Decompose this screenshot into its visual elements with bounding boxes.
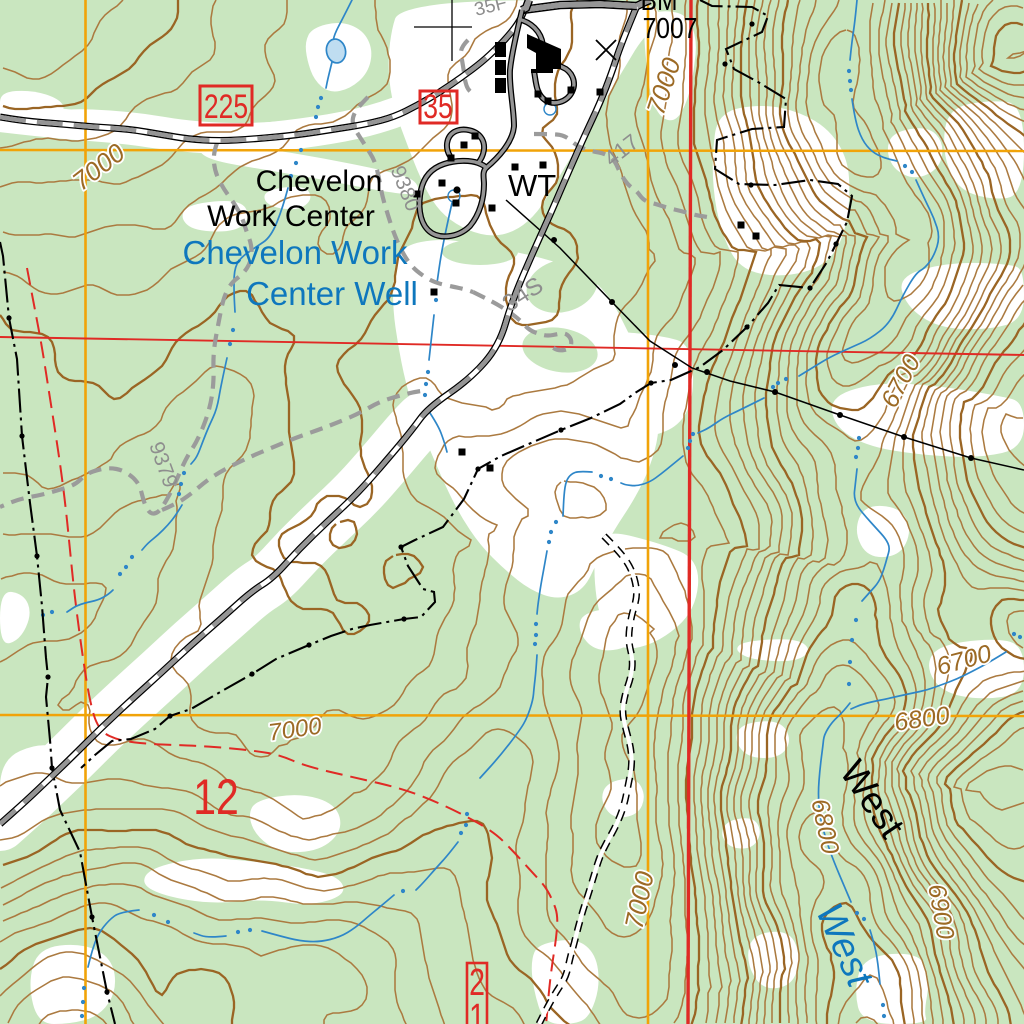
svg-text:225: 225 xyxy=(204,88,248,126)
svg-text:1: 1 xyxy=(469,997,485,1024)
svg-text:WT: WT xyxy=(508,168,556,203)
svg-text:Chevelon Work: Chevelon Work xyxy=(183,234,408,271)
svg-text:Chevelon: Chevelon xyxy=(256,165,383,198)
svg-text:35: 35 xyxy=(423,88,453,126)
svg-text:Center Well: Center Well xyxy=(246,275,418,312)
svg-text:Work Center: Work Center xyxy=(207,200,375,233)
svg-text:12: 12 xyxy=(193,769,239,825)
svg-text:7007: 7007 xyxy=(643,12,698,44)
